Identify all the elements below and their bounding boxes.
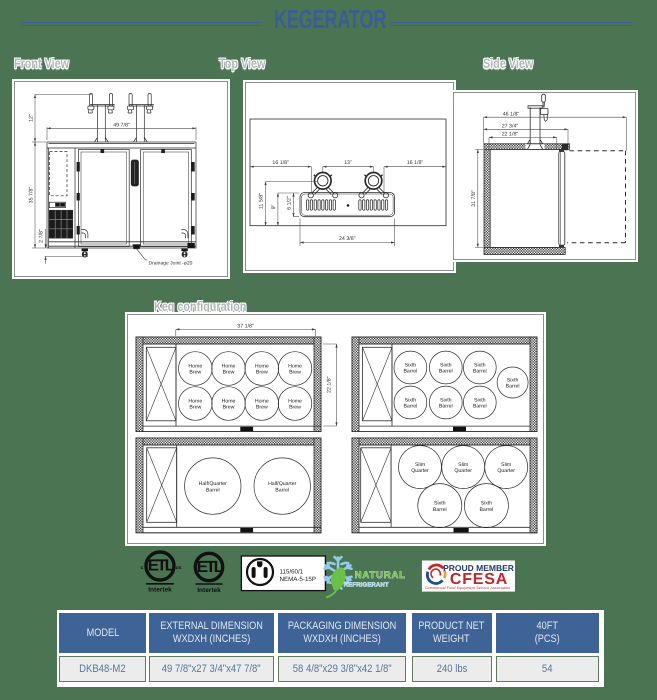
svg-text:Barrel: Barrel [479,507,493,513]
svg-text:46 1/8": 46 1/8" [503,111,520,117]
svg-text:Home: Home [288,363,302,369]
svg-text:Brew: Brew [289,370,301,376]
svg-text:9": 9" [271,204,277,209]
svg-text:Sixth: Sixth [474,362,486,368]
svg-text:37 1/8": 37 1/8" [237,323,254,329]
svg-text:Brew: Brew [223,405,235,411]
svg-text:ETL: ETL [197,558,224,576]
svg-text:Intertek: Intertek [197,587,221,594]
svg-text:Brew: Brew [256,405,268,411]
svg-text:Home: Home [222,398,236,404]
svg-text:Brew: Brew [256,370,268,376]
svg-text:Brew: Brew [189,370,201,376]
svg-text:ETL: ETL [148,556,175,574]
svg-text:22 1/8": 22 1/8" [327,376,333,393]
svg-text:22 1/8": 22 1/8" [502,132,519,138]
svg-text:Brew: Brew [223,370,235,376]
svg-text:Barrel: Barrel [439,404,453,410]
svg-text:NEMA-5-15P: NEMA-5-15P [280,576,316,583]
svg-text:Slim: Slim [501,462,511,468]
svg-text:Quarter: Quarter [497,468,515,474]
svg-text:Slim: Slim [415,462,425,468]
svg-text:Quarter: Quarter [411,468,429,474]
svg-text:Home: Home [288,398,302,404]
svg-text:Half/Quarter: Half/Quarter [268,481,297,487]
svg-text:Sixth: Sixth [507,377,519,383]
svg-text:24 3/8": 24 3/8" [339,236,356,242]
svg-text:Home: Home [188,363,202,369]
svg-text:Barrel: Barrel [206,487,220,493]
svg-text:2 7/8": 2 7/8" [39,229,45,243]
svg-text:27 3/4": 27 3/4" [502,123,519,129]
svg-text:Quarter: Quarter [454,468,472,474]
svg-text:Barrel: Barrel [433,507,447,513]
svg-text:11 5/8": 11 5/8" [259,193,265,209]
svg-text:Barrel: Barrel [403,404,417,410]
svg-text:Home: Home [188,398,202,404]
svg-text:Sixth: Sixth [434,500,446,506]
svg-text:NATURAL: NATURAL [355,570,406,581]
svg-text:REFRIGERANT: REFRIGERANT [344,581,389,588]
svg-text:Sixth: Sixth [405,362,417,368]
svg-text:Drainage Joint -ø20: Drainage Joint -ø20 [149,261,193,267]
svg-text:Barrel: Barrel [506,384,520,390]
svg-text:Sixth: Sixth [405,397,417,403]
svg-text:Commercial Food Equipment Serv: Commercial Food Equipment Service Associ… [425,586,511,590]
svg-text:16 1/8": 16 1/8" [272,160,289,166]
svg-text:us: us [176,565,182,571]
svg-text:Barrel: Barrel [473,369,487,375]
svg-text:Sixth: Sixth [481,500,493,506]
svg-text:Home: Home [222,363,236,369]
svg-text:49 7/8": 49 7/8" [113,123,130,129]
svg-text:115/60/1: 115/60/1 [280,569,304,576]
svg-text:6 1/2": 6 1/2" [287,196,293,210]
svg-text:Sixth: Sixth [440,362,452,368]
svg-text:13": 13" [344,160,352,166]
svg-text:c: c [141,565,144,571]
svg-text:35 7/8": 35 7/8" [29,187,35,204]
svg-text:Slim: Slim [458,462,468,468]
svg-text:Home: Home [255,398,269,404]
svg-text:Intertek: Intertek [148,587,172,594]
svg-text:31 7/8": 31 7/8" [471,190,477,207]
svg-text:Barrel: Barrel [439,369,453,375]
svg-text:Barrel: Barrel [275,487,289,493]
svg-text:Sixth: Sixth [440,397,452,403]
svg-text:Barrel: Barrel [473,404,487,410]
svg-text:12": 12" [29,114,35,122]
svg-text:Home: Home [255,363,269,369]
svg-text:Brew: Brew [189,405,201,411]
svg-text:Half/Quarter: Half/Quarter [199,481,228,487]
svg-text:16 1/8": 16 1/8" [407,160,424,166]
svg-text:Barrel: Barrel [403,369,417,375]
svg-text:Sixth: Sixth [474,397,486,403]
svg-text:Brew: Brew [289,405,301,411]
